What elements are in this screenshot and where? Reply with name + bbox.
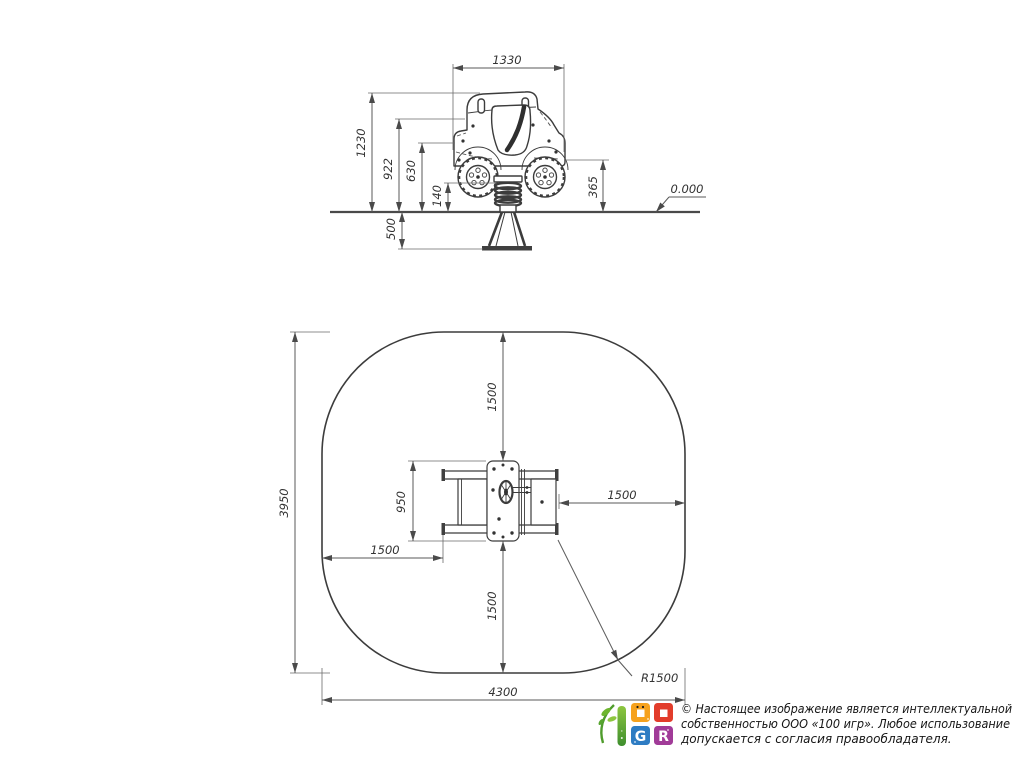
copyright-line-1: © Настоящее изображение является интелле… [681, 702, 1012, 716]
dim-1330-label: 1330 [492, 53, 521, 67]
copyright-notice: © Настоящее изображение является интелле… [680, 702, 1012, 746]
dim-1230-label: 1230 [354, 128, 368, 157]
dim-630-label: 630 [404, 160, 418, 182]
dim-365-label: 365 [586, 176, 600, 198]
rocker-plan-drawing [442, 461, 559, 541]
drawing-sheet: 1330 1230 922 630 140 365 500 0.000 [0, 0, 1024, 768]
footer: G R © Настоящее изображение является инт… [598, 702, 1013, 746]
copyright-line-2: собственностью ООО «100 игр». Любое испо… [681, 717, 1010, 731]
dim-140-label: 140 [430, 185, 444, 207]
logo-100igr: G R [598, 703, 673, 746]
dim-4300-label: 4300 [488, 685, 517, 699]
logo-tiles: G R [631, 703, 673, 745]
drawing-canvas: 1330 1230 922 630 140 365 500 0.000 [0, 0, 1024, 768]
spring [494, 176, 522, 212]
dim-3950-label: 3950 [277, 488, 291, 517]
rocker-car-drawing [454, 92, 568, 251]
side-view: 1330 1230 922 630 140 365 500 0.000 [330, 53, 706, 251]
dim-1500-top-label: 1500 [485, 382, 499, 411]
dim-r1500-label: R1500 [641, 671, 678, 685]
front-wheel [458, 157, 498, 197]
logo-letter-g: G [635, 729, 647, 745]
logo-leaf-icon [598, 705, 626, 746]
rear-wheel [525, 157, 565, 197]
dim-1500-right-label: 1500 [607, 488, 636, 502]
dim-500-label: 500 [384, 218, 398, 240]
logo-letter-r: R [658, 729, 669, 745]
plan-view: 3950 4300 1500 1500 1500 1500 950 R1500 [277, 332, 685, 705]
ground-level-label: 0.000 [671, 182, 704, 196]
dim-950-label: 950 [394, 491, 408, 513]
dim-1500-left-label: 1500 [370, 543, 399, 557]
copyright-line-3: допускается с согласия правообладателя. [680, 732, 952, 746]
dim-922-label: 922 [381, 158, 395, 180]
dim-1500-bottom-label: 1500 [485, 591, 499, 620]
ground-anchor [482, 212, 532, 251]
